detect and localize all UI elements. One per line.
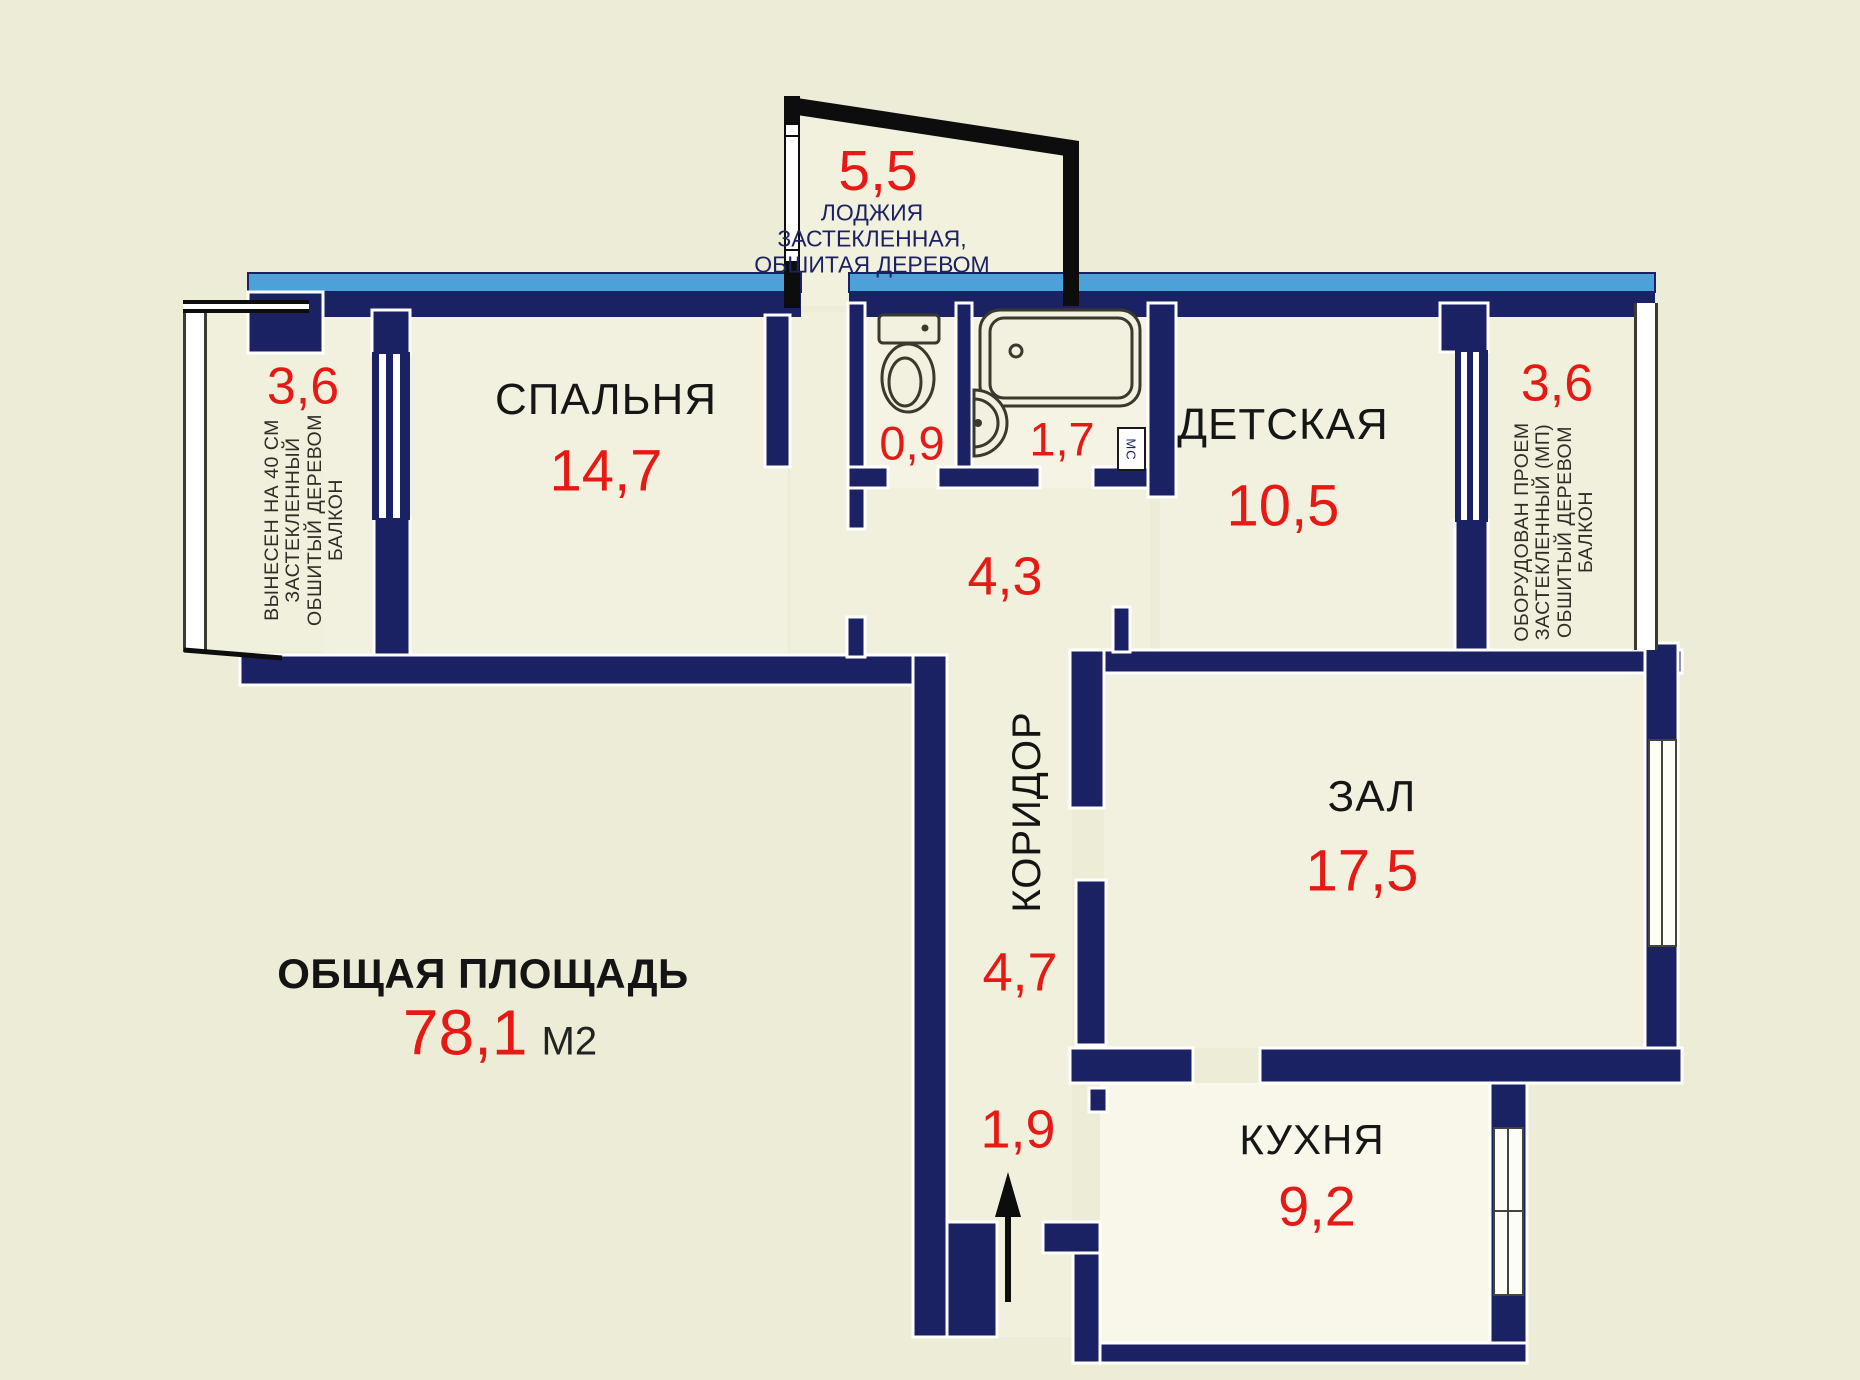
wall-corridor-right-lower	[1076, 880, 1106, 1045]
wall-bedroom-right	[765, 315, 790, 467]
corridor-area-top: 4,3	[967, 549, 1042, 606]
wall-kitchen-left	[1073, 1253, 1100, 1363]
corridor-top-floor	[790, 312, 848, 658]
kitchen-label: КУХНЯ	[1239, 1118, 1384, 1162]
bathtub-icon	[980, 310, 1140, 406]
wall-nursery-window-bottom-pier	[1455, 520, 1488, 653]
wall-hall-top	[1070, 650, 1682, 673]
corridor-area-mid: 4,7	[982, 945, 1057, 1002]
wall-wc-door-stub	[847, 617, 865, 657]
mc-badge: МС	[1117, 427, 1146, 471]
wall-corridor-right-upper	[1070, 650, 1104, 808]
wall-wc-bath-divider	[956, 303, 972, 488]
wc-area: 0,9	[879, 418, 944, 467]
wall-hall-top-stub	[1113, 607, 1130, 652]
wall-bath-right	[1148, 303, 1176, 497]
wall-bedroom-bottom	[240, 655, 913, 685]
wall-bedroom-window-bottom-pier	[374, 518, 410, 658]
corridor-area-entry: 1,9	[980, 1102, 1055, 1159]
hall-window	[1649, 740, 1676, 946]
corridor-label: КОРИДОР	[1006, 711, 1048, 912]
total-area-label: ОБЩАЯ ПЛОЩАДЬ	[277, 952, 688, 996]
balcony-left-description: ВЫНЕСЕН НА 40 СМ ЗАСТЕКЛЕННЫЙ ОБШИТЫЙ ДЕ…	[262, 414, 348, 626]
balcony-right-desc-line3: ОБШИТЫЙ ДЕРЕВОМ	[1555, 422, 1576, 641]
bedroom-area: 14,7	[550, 442, 663, 503]
balcony-right-desc-line2: ЗАСТЕКЛЕННЫЙ (МП)	[1534, 422, 1555, 641]
wall-entry-left-jamb	[947, 1222, 997, 1337]
balcony-right-desc-line1: ОБОРУДОВАН ПРОЕМ	[1512, 422, 1533, 641]
wall-entry-right-jamb	[1043, 1222, 1100, 1253]
bedroom-balcony-window	[372, 352, 410, 520]
loggia-desc-line3: ОБШИТАЯ ДЕРЕВОМ	[754, 252, 989, 278]
loggia-desc-line2: ЗАСТЕКЛЕННАЯ,	[754, 226, 989, 252]
loggia-description: ЛОДЖИЯ ЗАСТЕКЛЕННАЯ, ОБШИТАЯ ДЕРЕВОМ	[754, 200, 989, 277]
loggia-right-wall	[1063, 141, 1079, 306]
balcony-left-desc-line1: ВЫНЕСЕН НА 40 СМ	[262, 414, 283, 626]
wall-nursery-right-pier	[1440, 303, 1488, 352]
total-area-value: 78,1	[403, 999, 528, 1066]
wall-hall-bottom-left	[1070, 1048, 1193, 1083]
balcony-left-desc-line2: ЗАСТЕКЛЕННЫЙ	[284, 414, 305, 626]
nursery-label: ДЕТСКАЯ	[1177, 402, 1389, 448]
total-area-unit: М2	[541, 1020, 597, 1062]
wall-wc-bottom	[848, 467, 888, 488]
balcony-left-desc-line4: БАЛКОН	[326, 414, 347, 626]
toilet-icon	[879, 315, 939, 412]
kitchen-window	[1494, 1128, 1523, 1295]
hall-area: 17,5	[1306, 842, 1419, 903]
bedroom-label: СПАЛЬНЯ	[495, 377, 717, 423]
wall-kitchen-bottom	[1093, 1343, 1527, 1363]
balcony-right-desc-line4: БАЛКОН	[1576, 422, 1597, 641]
balcony-left-desc-line3: ОБШИТЫЙ ДЕРЕВОМ	[305, 414, 326, 626]
nursery-balcony-window	[1455, 350, 1488, 522]
nursery-area: 10,5	[1227, 477, 1340, 538]
wall-bedroom-window-top-pier	[372, 310, 410, 354]
wall-kitchen-door-jamb	[1089, 1088, 1107, 1112]
floor-plan: СПАЛЬНЯ 14,7 ДЕТСКАЯ 10,5 ЗАЛ 17,5 КУХНЯ…	[0, 0, 1860, 1380]
hall-label: ЗАЛ	[1328, 774, 1417, 820]
balcony-right-description: ОБОРУДОВАН ПРОЕМ ЗАСТЕКЛЕННЫЙ (МП) ОБШИТ…	[1512, 422, 1598, 641]
kitchen-area: 9,2	[1278, 1178, 1356, 1237]
bathroom-area: 1,7	[1029, 414, 1094, 463]
balcony-right-area: 3,6	[1521, 357, 1593, 412]
total-area-row: 78,1 М2	[403, 999, 597, 1066]
wall-wc-left	[848, 303, 865, 529]
loggia-desc-line1: ЛОДЖИЯ	[754, 200, 989, 226]
wall-bath-bottom-left	[938, 467, 1040, 488]
wall-hall-bottom-right	[1260, 1048, 1682, 1083]
mc-badge-text: МС	[1124, 438, 1139, 460]
balcony-right-railing	[1634, 303, 1658, 650]
loggia-area: 5,5	[838, 142, 917, 202]
balcony-left-area: 3,6	[267, 360, 339, 415]
wall-corridor-left	[913, 655, 947, 1337]
